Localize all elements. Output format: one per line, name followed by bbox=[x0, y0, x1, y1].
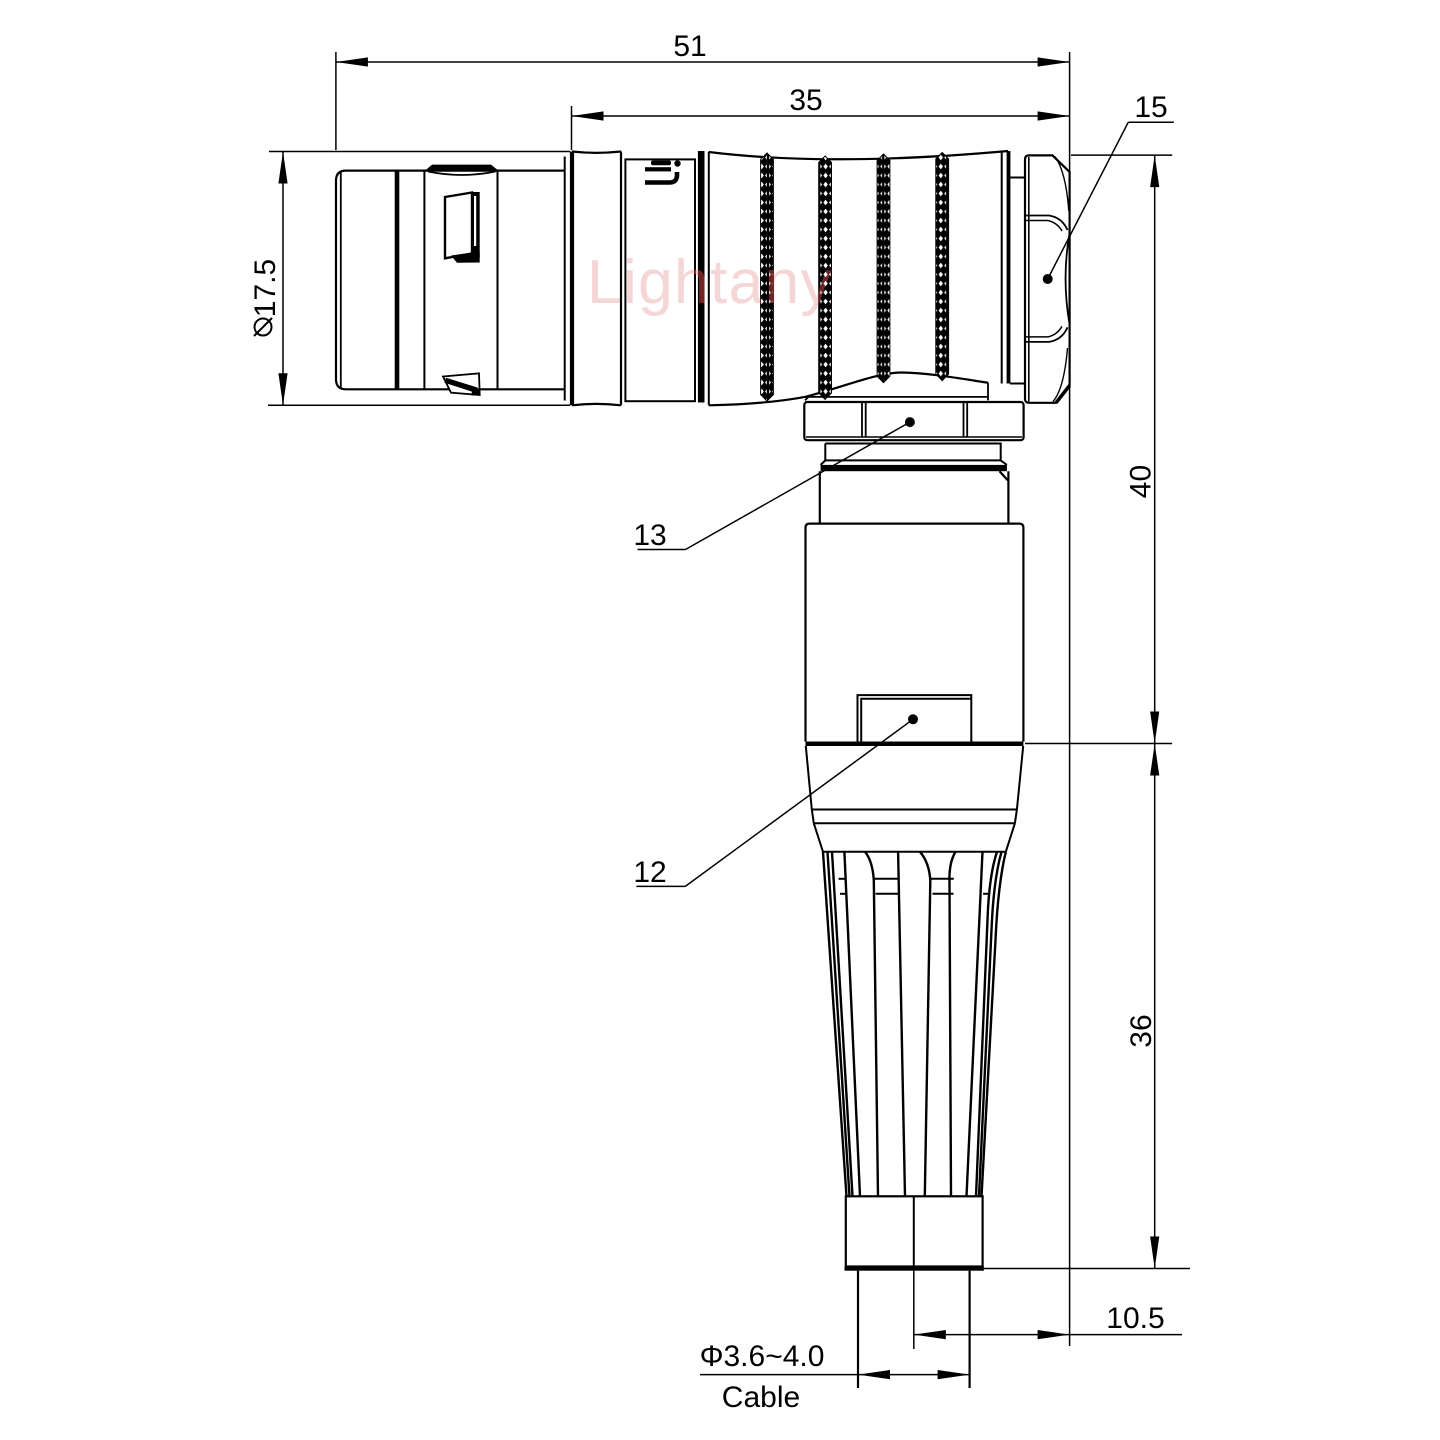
svg-text:Cable: Cable bbox=[722, 1381, 800, 1414]
svg-text:Lightany: Lightany bbox=[587, 247, 833, 317]
svg-text:40: 40 bbox=[1125, 465, 1158, 498]
svg-text:17.5: 17.5 bbox=[249, 259, 282, 317]
svg-text:35: 35 bbox=[789, 84, 822, 117]
svg-text:15: 15 bbox=[1134, 91, 1167, 124]
svg-text:13: 13 bbox=[633, 519, 666, 552]
svg-text:36: 36 bbox=[1125, 1014, 1158, 1047]
svg-text:12: 12 bbox=[633, 856, 666, 889]
svg-text:10.5: 10.5 bbox=[1106, 1302, 1164, 1335]
svg-text:Φ3.6~4.0: Φ3.6~4.0 bbox=[700, 1340, 825, 1373]
svg-text:51: 51 bbox=[673, 30, 706, 63]
